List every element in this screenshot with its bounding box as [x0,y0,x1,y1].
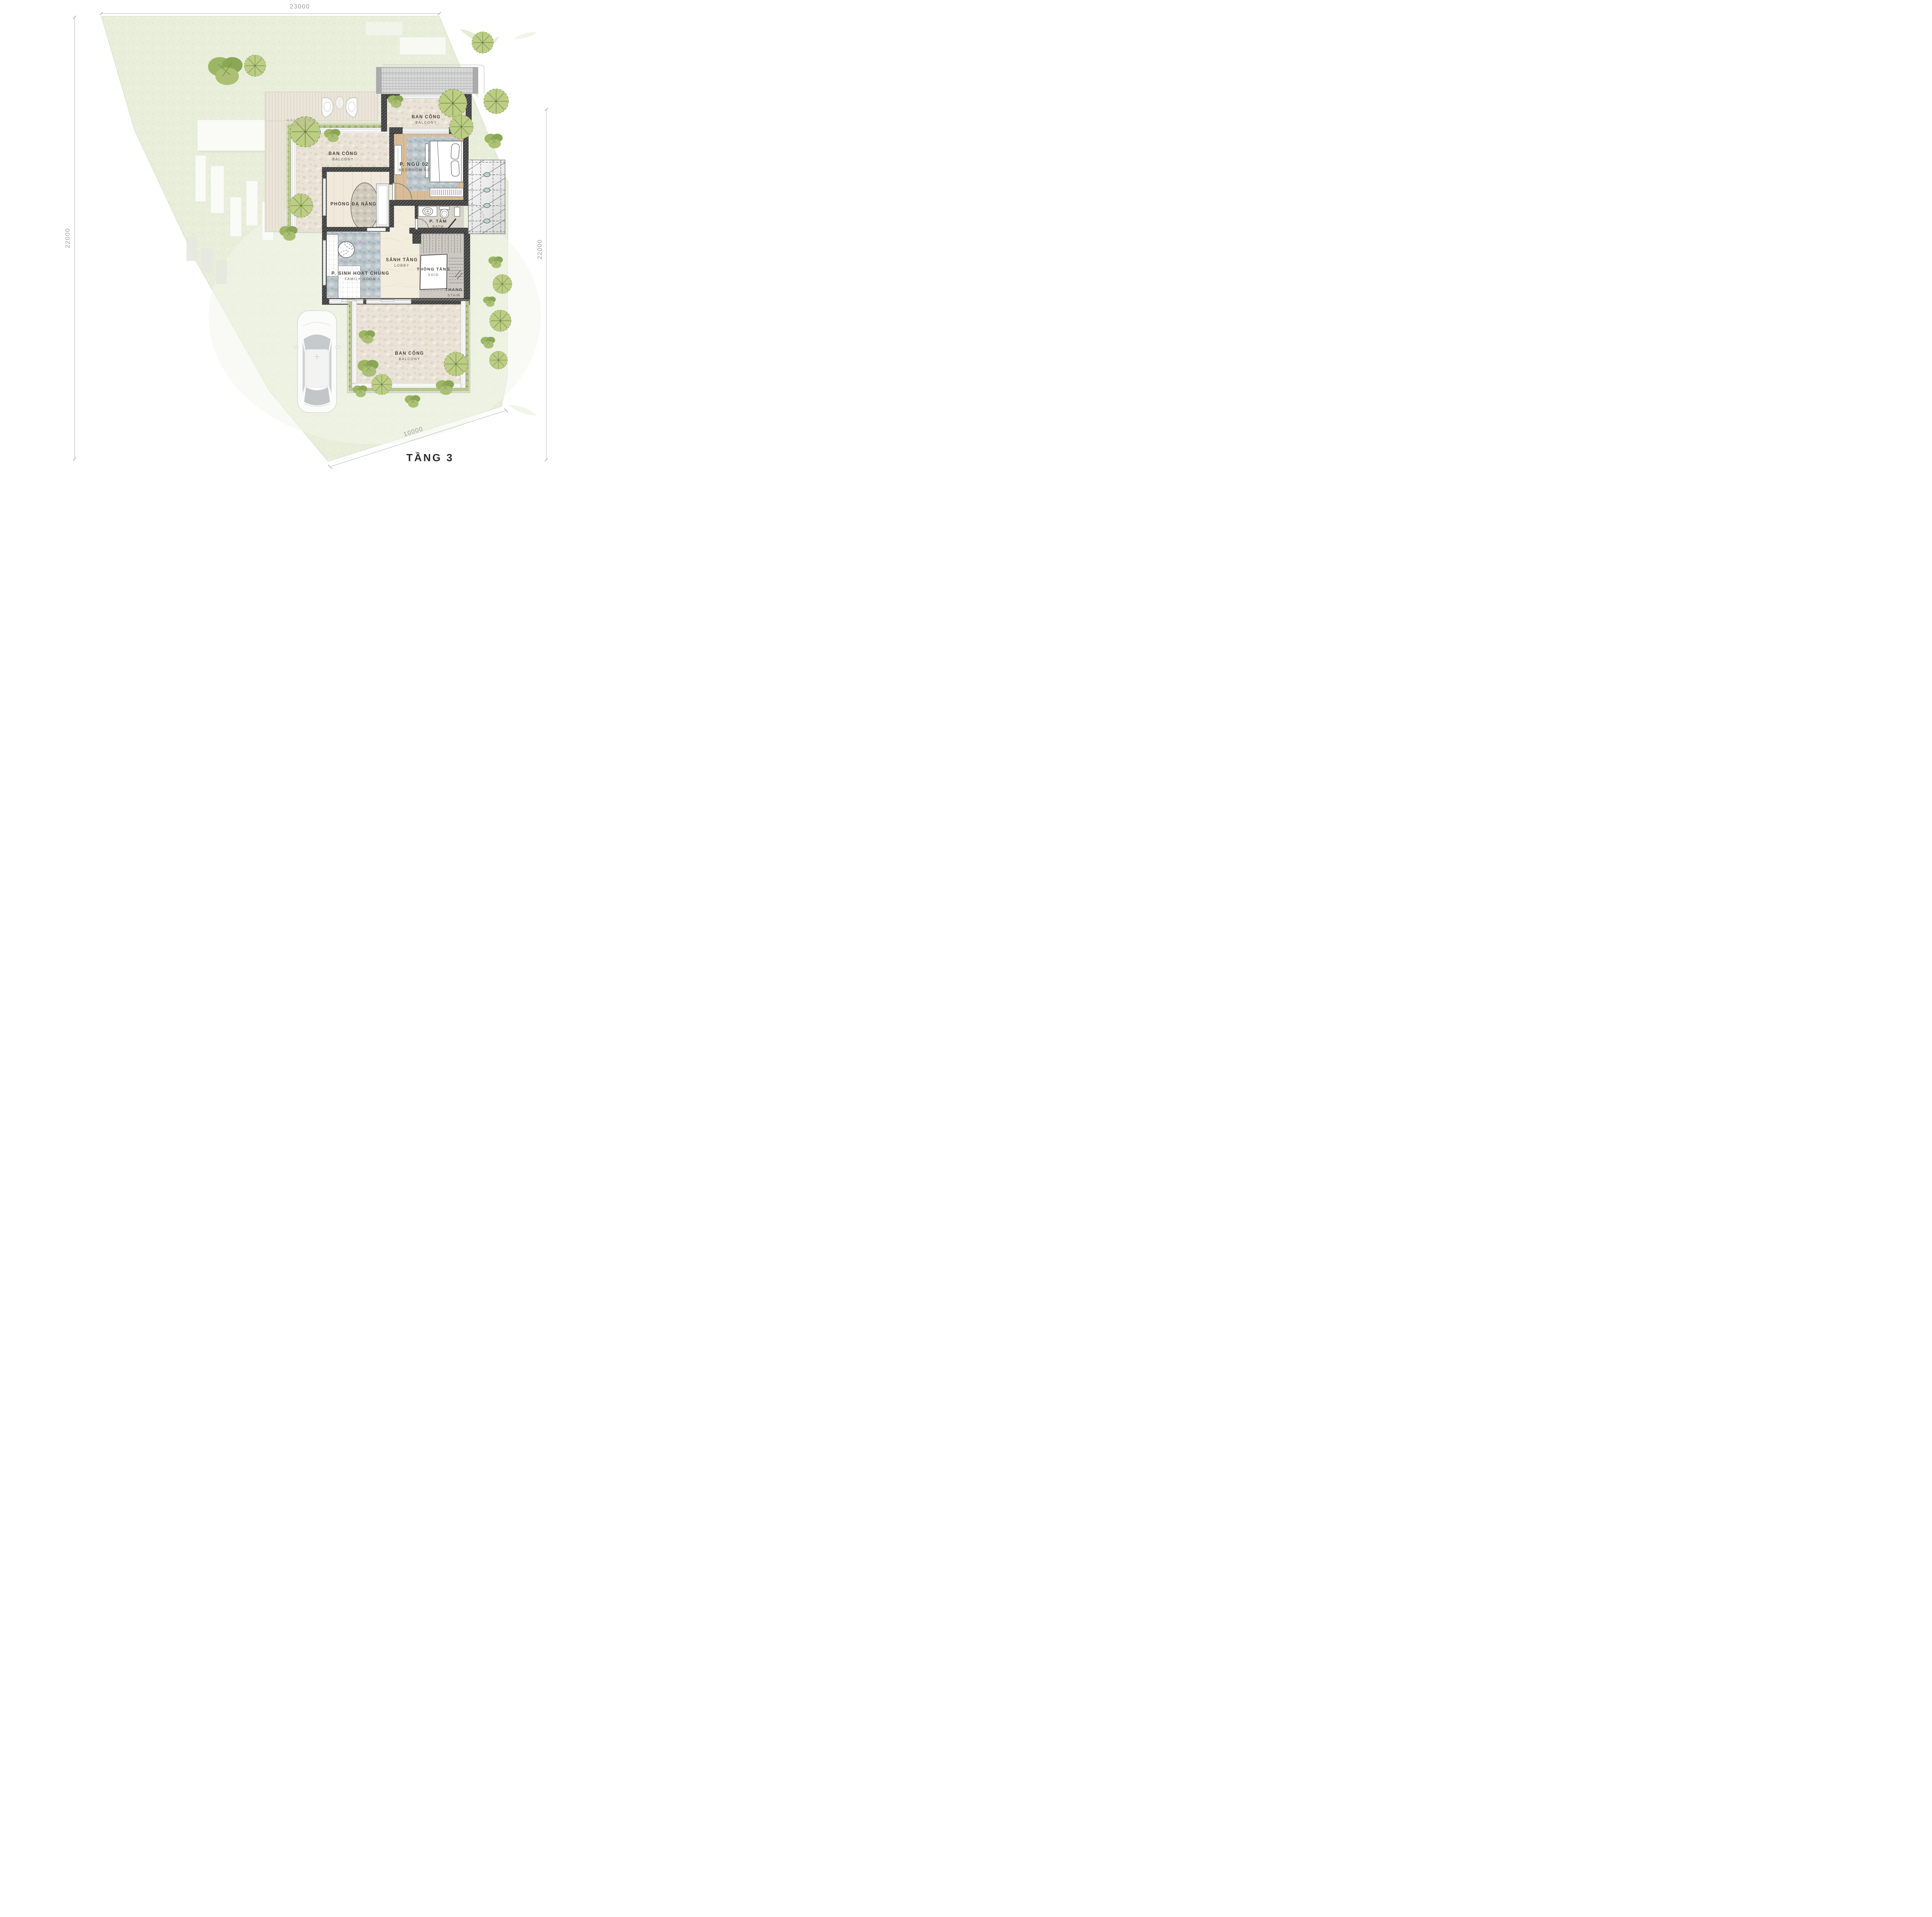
hall-floor [394,206,415,231]
tree-icon [290,117,320,147]
tree-icon [493,274,512,293]
roof [376,65,484,94]
dimension-left: 22000 [65,228,71,248]
tree-icon [439,89,467,117]
lawn-strip [349,301,352,391]
window [367,228,386,231]
lawn-strip [466,301,469,391]
pillow-icon [451,161,459,177]
pillow-icon [451,143,460,159]
oval-rug [351,183,379,231]
window [403,128,449,134]
floor-plan-drawing [0,0,681,479]
plan-title: TẦNG 3 [406,452,454,464]
floor-plan-page: HÀNG HIÊN TERRACE BAN CÔNG BALCONY BAN C… [0,0,681,479]
tree-icon [484,89,509,114]
mirror-icon [294,346,298,349]
tree-icon [472,32,493,53]
dimension-top: 23000 [290,3,310,10]
tree-icon [490,310,511,331]
sink-icon [418,206,437,216]
window [323,179,326,216]
cabinet-icon [376,184,389,226]
tree-icon [490,351,507,369]
pergola-trellis [468,160,505,234]
dimension-right: 22000 [537,239,544,259]
bed-bench-icon [425,144,429,178]
tree-icon [450,115,473,139]
void-opening [420,254,447,289]
balcony-bottom [347,300,470,393]
bed-icon [425,141,463,182]
seating-module-icon [338,266,361,298]
lawn-strip [287,124,291,231]
toilet-icon [439,206,449,218]
tree-icon [444,352,468,376]
mirror-icon [336,346,340,349]
tree-icon [244,55,265,76]
car-icon [294,311,340,413]
tree-icon [289,194,313,218]
tree-icon [372,374,392,395]
seating-module-icon [327,235,338,276]
wardrobe-grille-icon [430,188,463,197]
door-leaf [415,219,418,230]
door-leaf [393,183,395,200]
window [323,240,326,285]
